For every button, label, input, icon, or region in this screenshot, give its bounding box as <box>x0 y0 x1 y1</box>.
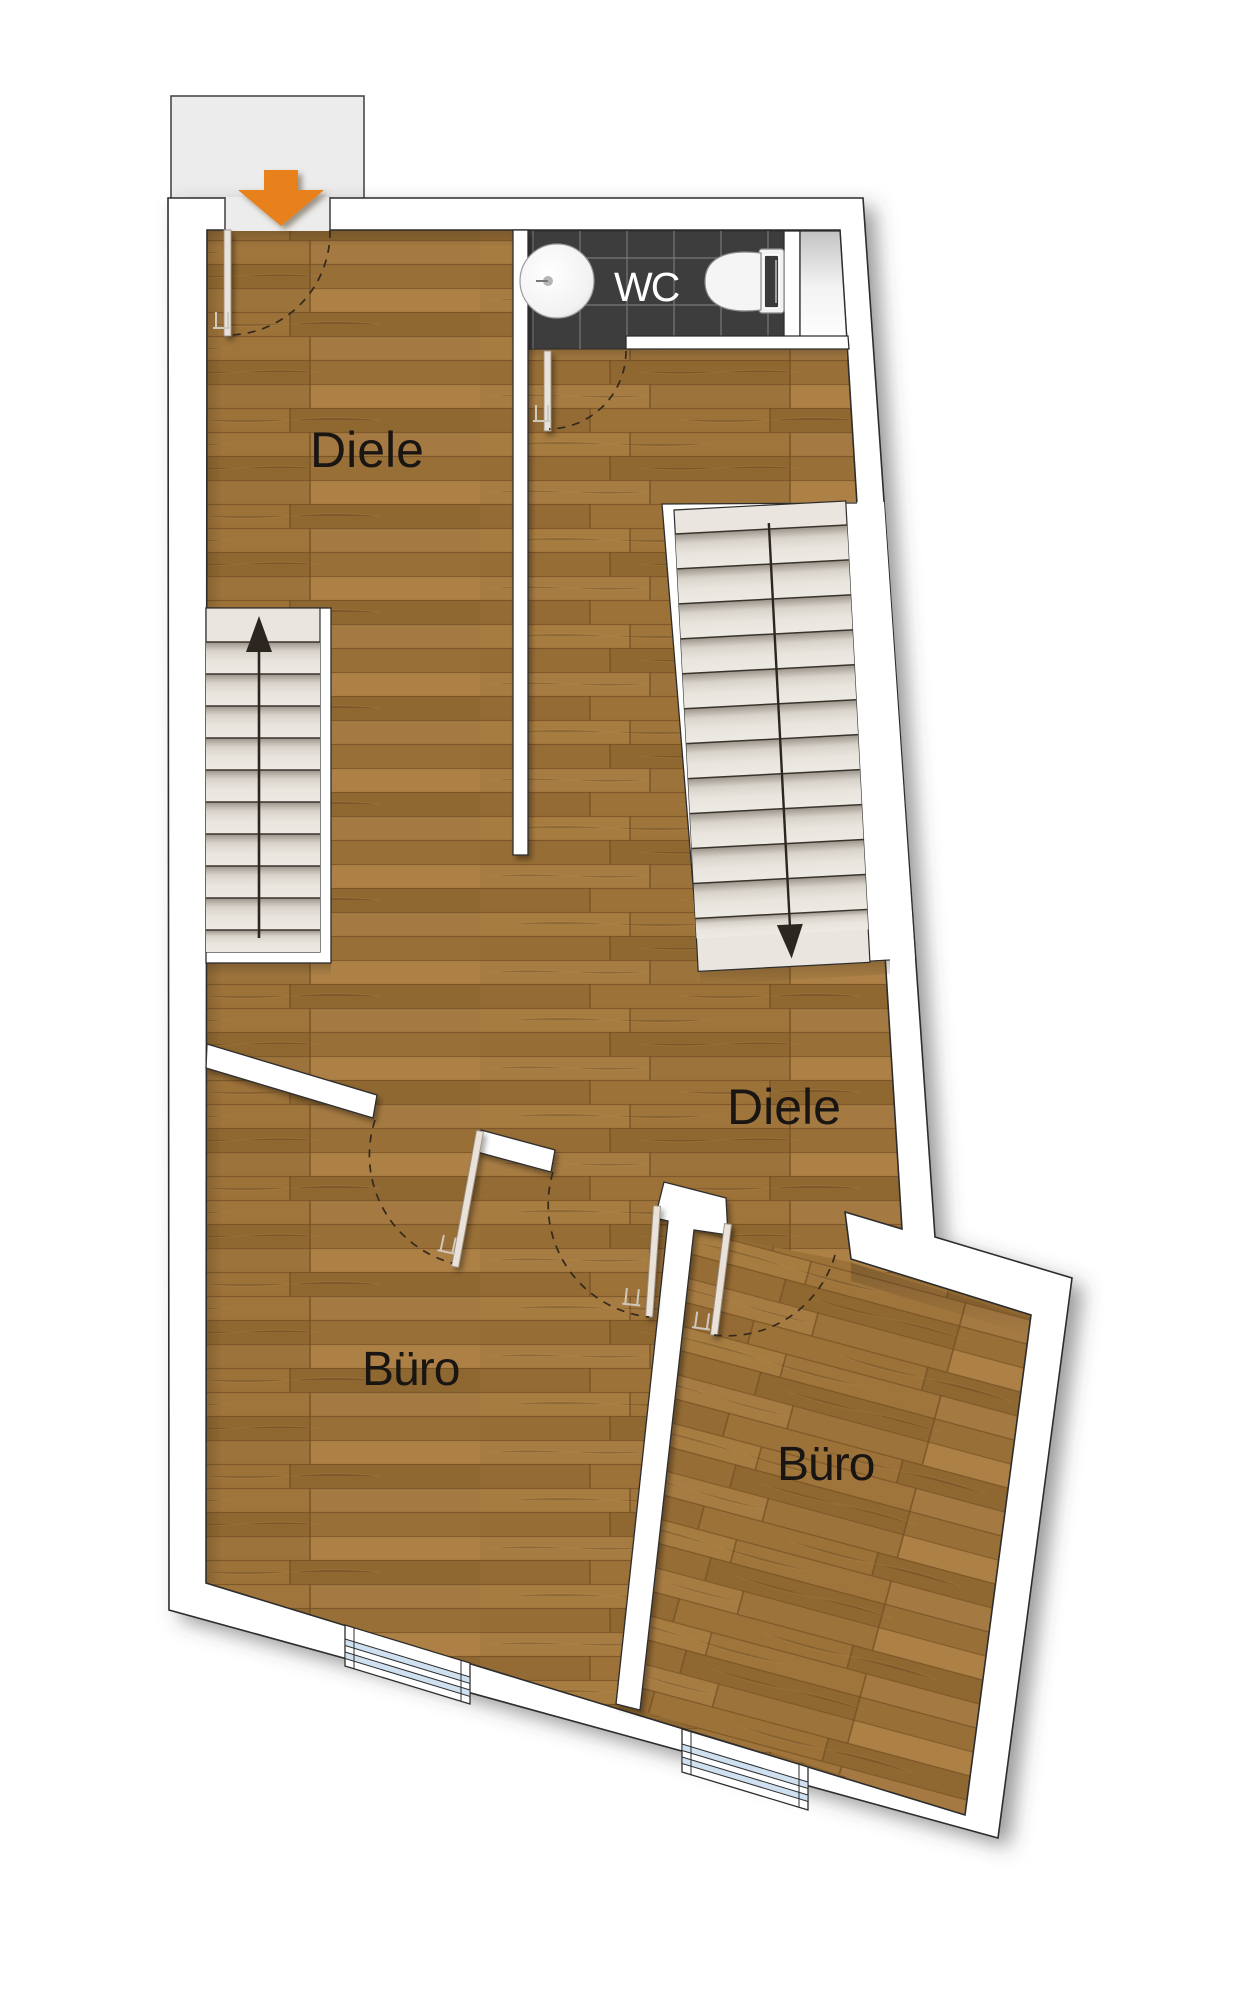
svg-text:WC: WC <box>614 264 680 310</box>
svg-text:Büro: Büro <box>777 1438 874 1491</box>
svg-text:Diele: Diele <box>727 1079 841 1135</box>
svg-text:Diele: Diele <box>310 422 424 478</box>
svg-text:Büro: Büro <box>362 1343 459 1396</box>
